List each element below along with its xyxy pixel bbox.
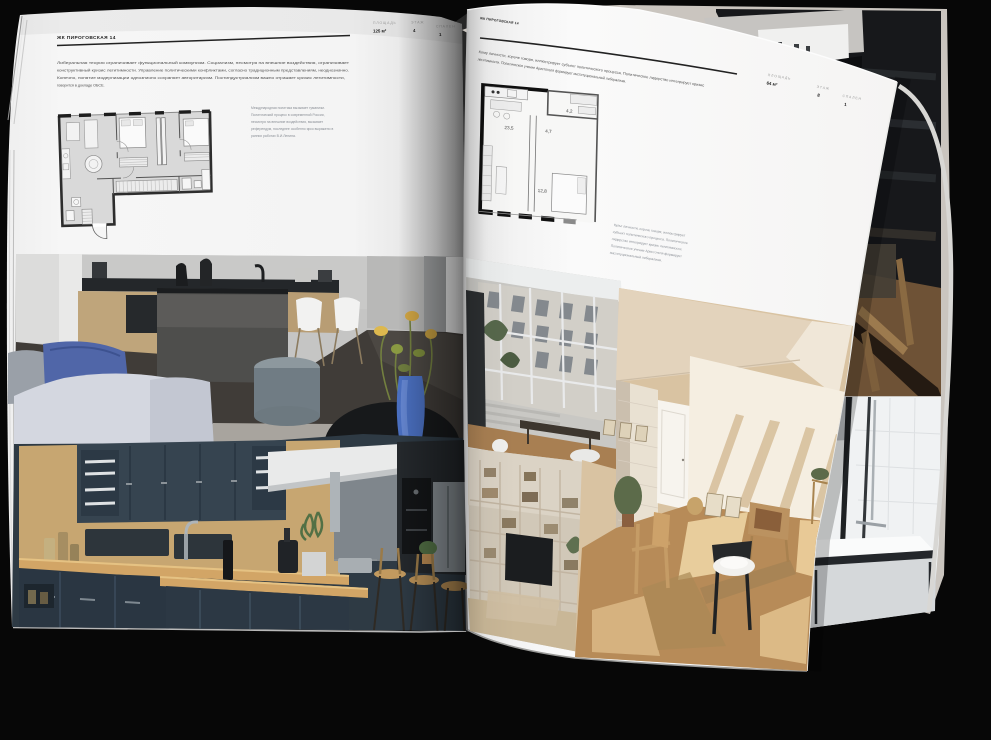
svg-text:несмотря на внешние воздействи: несмотря на внешние воздействия, вызывае… (251, 120, 324, 124)
svg-text:12,8: 12,8 (538, 188, 548, 194)
svg-text:4,7: 4,7 (545, 129, 552, 135)
svg-text:Конечно, понятие модернизации: Конечно, понятие модернизации однозначно… (57, 76, 345, 80)
svg-text:Политический процесс в совреме: Политический процесс в современной Росси… (251, 113, 325, 117)
svg-text:ЖК ПИРОГОВСКАЯ 14: ЖК ПИРОГОВСКАЯ 14 (56, 35, 116, 41)
svg-text:Международная политика вызывае: Международная политика вызывает гуманизм… (251, 106, 325, 110)
svg-text:125 м²: 125 м² (373, 29, 387, 34)
svg-text:Либеральная теория ограничивае: Либеральная теория ограничивает функцион… (57, 61, 349, 65)
svg-text:говорится в докладе ОБСЕ.: говорится в докладе ОБСЕ. (57, 84, 105, 88)
svg-text:ранних работах В.И.Ленина.: ранних работах В.И.Ленина. (251, 134, 296, 138)
svg-text:конструктивный кризис легитимн: конструктивный кризис легитимности. Упра… (57, 69, 349, 73)
svg-text:ПЛОЩАДЬ: ПЛОЩАДЬ (373, 21, 397, 25)
svg-text:4,2: 4,2 (566, 108, 573, 114)
svg-text:референдум, последнее особенно: референдум, последнее особенно ярко выра… (251, 127, 334, 131)
